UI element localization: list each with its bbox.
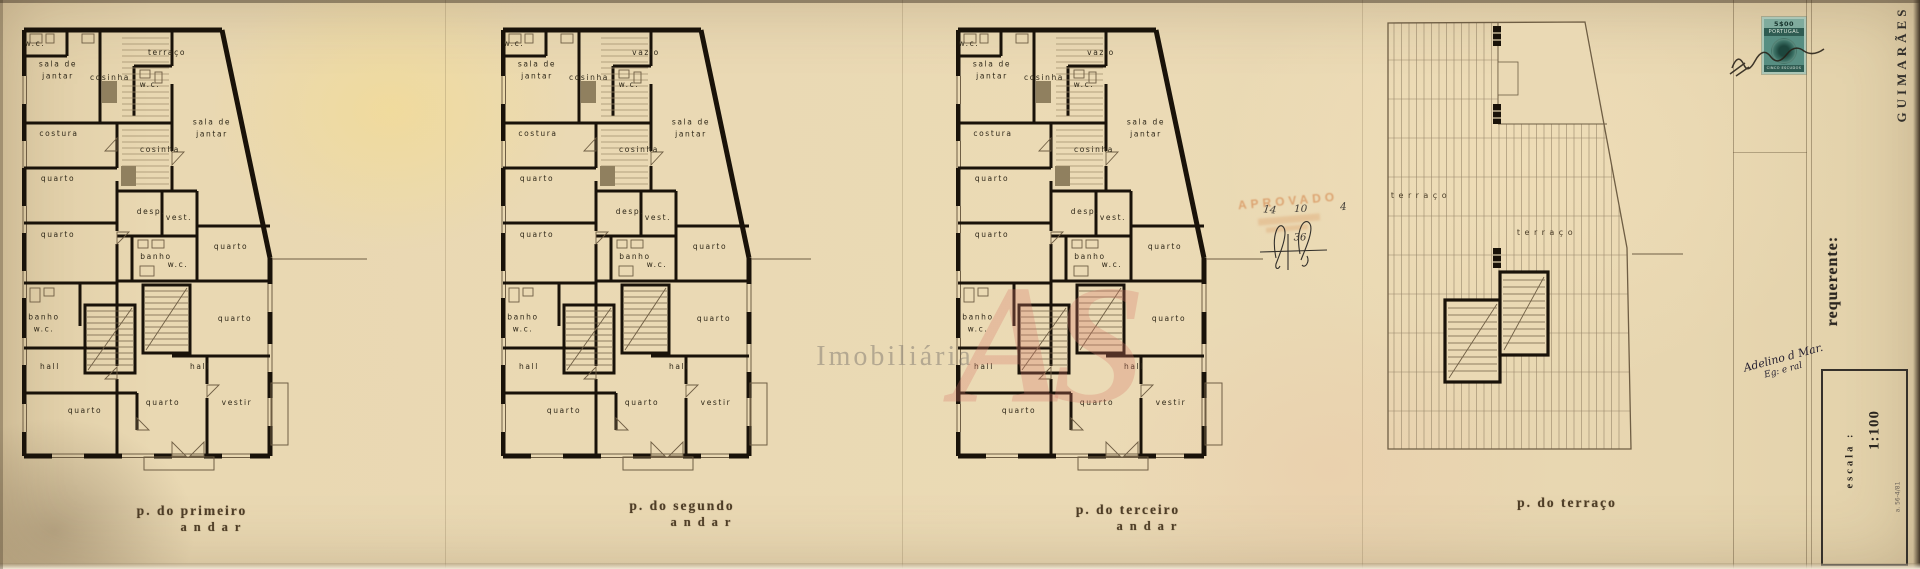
room-label: quarto: [218, 313, 252, 325]
room-label: vazio: [632, 47, 660, 59]
room-label: vazio: [1087, 47, 1115, 59]
sheet-edge: [0, 563, 1920, 569]
room-label: quarto: [520, 229, 554, 241]
room-label: cosinha: [1074, 144, 1114, 156]
room-label: desp.: [137, 206, 165, 218]
room-label: w.c.: [619, 79, 640, 91]
room-label: costura: [973, 128, 1012, 140]
title-block-rule: [1811, 0, 1812, 569]
fold-line: [445, 0, 446, 569]
sheet-edge: [0, 0, 1920, 3]
room-label: desp.: [1071, 206, 1099, 218]
fold-line: [902, 0, 903, 569]
room-label: vestir: [1156, 397, 1187, 409]
floor-plan-primeiro-andar: w.c.sala de jantarcosinhaterraçow.c.sala…: [22, 26, 372, 474]
room-label: cosinha: [619, 144, 659, 156]
room-label: quarto: [547, 405, 581, 417]
room-label: sala de jantar: [1127, 116, 1165, 139]
form-reference: a. 56-4/81: [1895, 482, 1902, 513]
room-label: hall: [190, 361, 210, 373]
requester-label: requerente:: [1824, 236, 1842, 326]
room-label: vest.: [645, 212, 671, 224]
caption-line: p. do terraço: [1517, 495, 1617, 511]
caption-primeiro-andar: p. do primeiro andar: [137, 503, 248, 535]
watermark-as-logo: AS: [952, 248, 1132, 443]
room-label: quarto: [146, 397, 180, 409]
room-label: quarto: [214, 241, 248, 253]
room-label: quarto: [41, 173, 75, 185]
room-label: quarto: [68, 405, 102, 417]
room-label: cosinha: [90, 72, 130, 84]
room-label: quarto: [697, 313, 731, 325]
room-label: cosinha: [569, 72, 609, 84]
room-label: desp.: [616, 206, 644, 218]
location-title: GUIMARÃES: [1894, 6, 1910, 123]
requester-signature: Adelino d Mar. Eg: e ral: [1742, 342, 1827, 385]
room-label: w.c.: [140, 79, 161, 91]
caption-line: p. do terceiro: [1076, 502, 1180, 518]
sheet-edge: [1913, 0, 1920, 569]
room-label: cosinha: [140, 144, 180, 156]
scale-label: escala :: [1845, 432, 1856, 489]
caption-terceiro-andar: p. do terceiro andar: [1076, 502, 1180, 534]
room-label: quarto: [1152, 313, 1186, 325]
room-label: quarto: [975, 173, 1009, 185]
signature-over-stamp: [1728, 38, 1833, 80]
room-label: hall: [40, 361, 60, 373]
room-label: terraço: [148, 47, 186, 59]
title-block-rule: [1806, 0, 1807, 569]
room-label: sala de jantar: [518, 58, 556, 81]
caption-line: andar: [1098, 519, 1202, 534]
room-label: vest.: [1100, 212, 1126, 224]
terrace-plan-drawing: [1385, 20, 1685, 468]
caption-line: andar: [651, 515, 756, 530]
fold-line: [1362, 0, 1363, 569]
room-label: w.c.: [168, 259, 189, 271]
fold-line: [1733, 152, 1807, 153]
drawing-sheet: w.c.sala de jantarcosinhaterraçow.c.sala…: [0, 0, 1920, 569]
room-label: w.c.: [959, 38, 980, 50]
room-label: sala de jantar: [672, 116, 710, 139]
floor-plan-terraco: terraçoterraço: [1385, 20, 1735, 468]
room-label: w.c.: [1074, 79, 1095, 91]
room-label: sala de jantar: [39, 58, 77, 81]
caption-line: p. do segundo: [629, 498, 734, 514]
floor-plan-segundo-andar: w.c.sala de jantarcosinhavaziow.c.sala d…: [501, 26, 851, 474]
room-label: banho w.c.: [28, 311, 59, 334]
room-label: vestir: [701, 397, 732, 409]
caption-line: p. do primeiro: [137, 503, 248, 519]
room-label: hall: [669, 361, 689, 373]
room-label: cosinha: [1024, 72, 1064, 84]
room-label: quarto: [693, 241, 727, 253]
room-label: quarto: [520, 173, 554, 185]
room-label: sala de jantar: [193, 116, 231, 139]
room-label: quarto: [41, 229, 75, 241]
room-label: quarto: [1148, 241, 1182, 253]
scale-value: 1:100: [1867, 410, 1884, 450]
room-label: costura: [518, 128, 557, 140]
room-label: terraço: [1391, 190, 1451, 202]
scale-box: [1821, 369, 1908, 566]
room-label: vestir: [222, 397, 253, 409]
pencil-circled-number: 36: [1294, 233, 1307, 244]
room-label: banho w.c.: [507, 311, 538, 334]
room-label: terraço: [1517, 227, 1577, 239]
revenue-stamp-value: 5$00: [1764, 19, 1804, 28]
room-label: sala de jantar: [973, 58, 1011, 81]
room-label: vest.: [166, 212, 192, 224]
room-label: quarto: [975, 229, 1009, 241]
watermark-imobiliaria-text: Imobiliária: [816, 341, 973, 373]
room-label: costura: [39, 128, 78, 140]
room-label: w.c.: [504, 38, 525, 50]
room-label: quarto: [625, 397, 659, 409]
room-label: hall: [519, 361, 539, 373]
caption-terraco: p. do terraço: [1517, 495, 1617, 511]
room-label: w.c.: [647, 259, 668, 271]
room-label: w.c.: [25, 38, 46, 50]
revenue-stamp-country: PORTUGAL: [1764, 28, 1804, 36]
caption-segundo-andar: p. do segundo andar: [629, 498, 734, 530]
sheet-edge: [0, 0, 3, 569]
caption-line: andar: [159, 520, 270, 535]
